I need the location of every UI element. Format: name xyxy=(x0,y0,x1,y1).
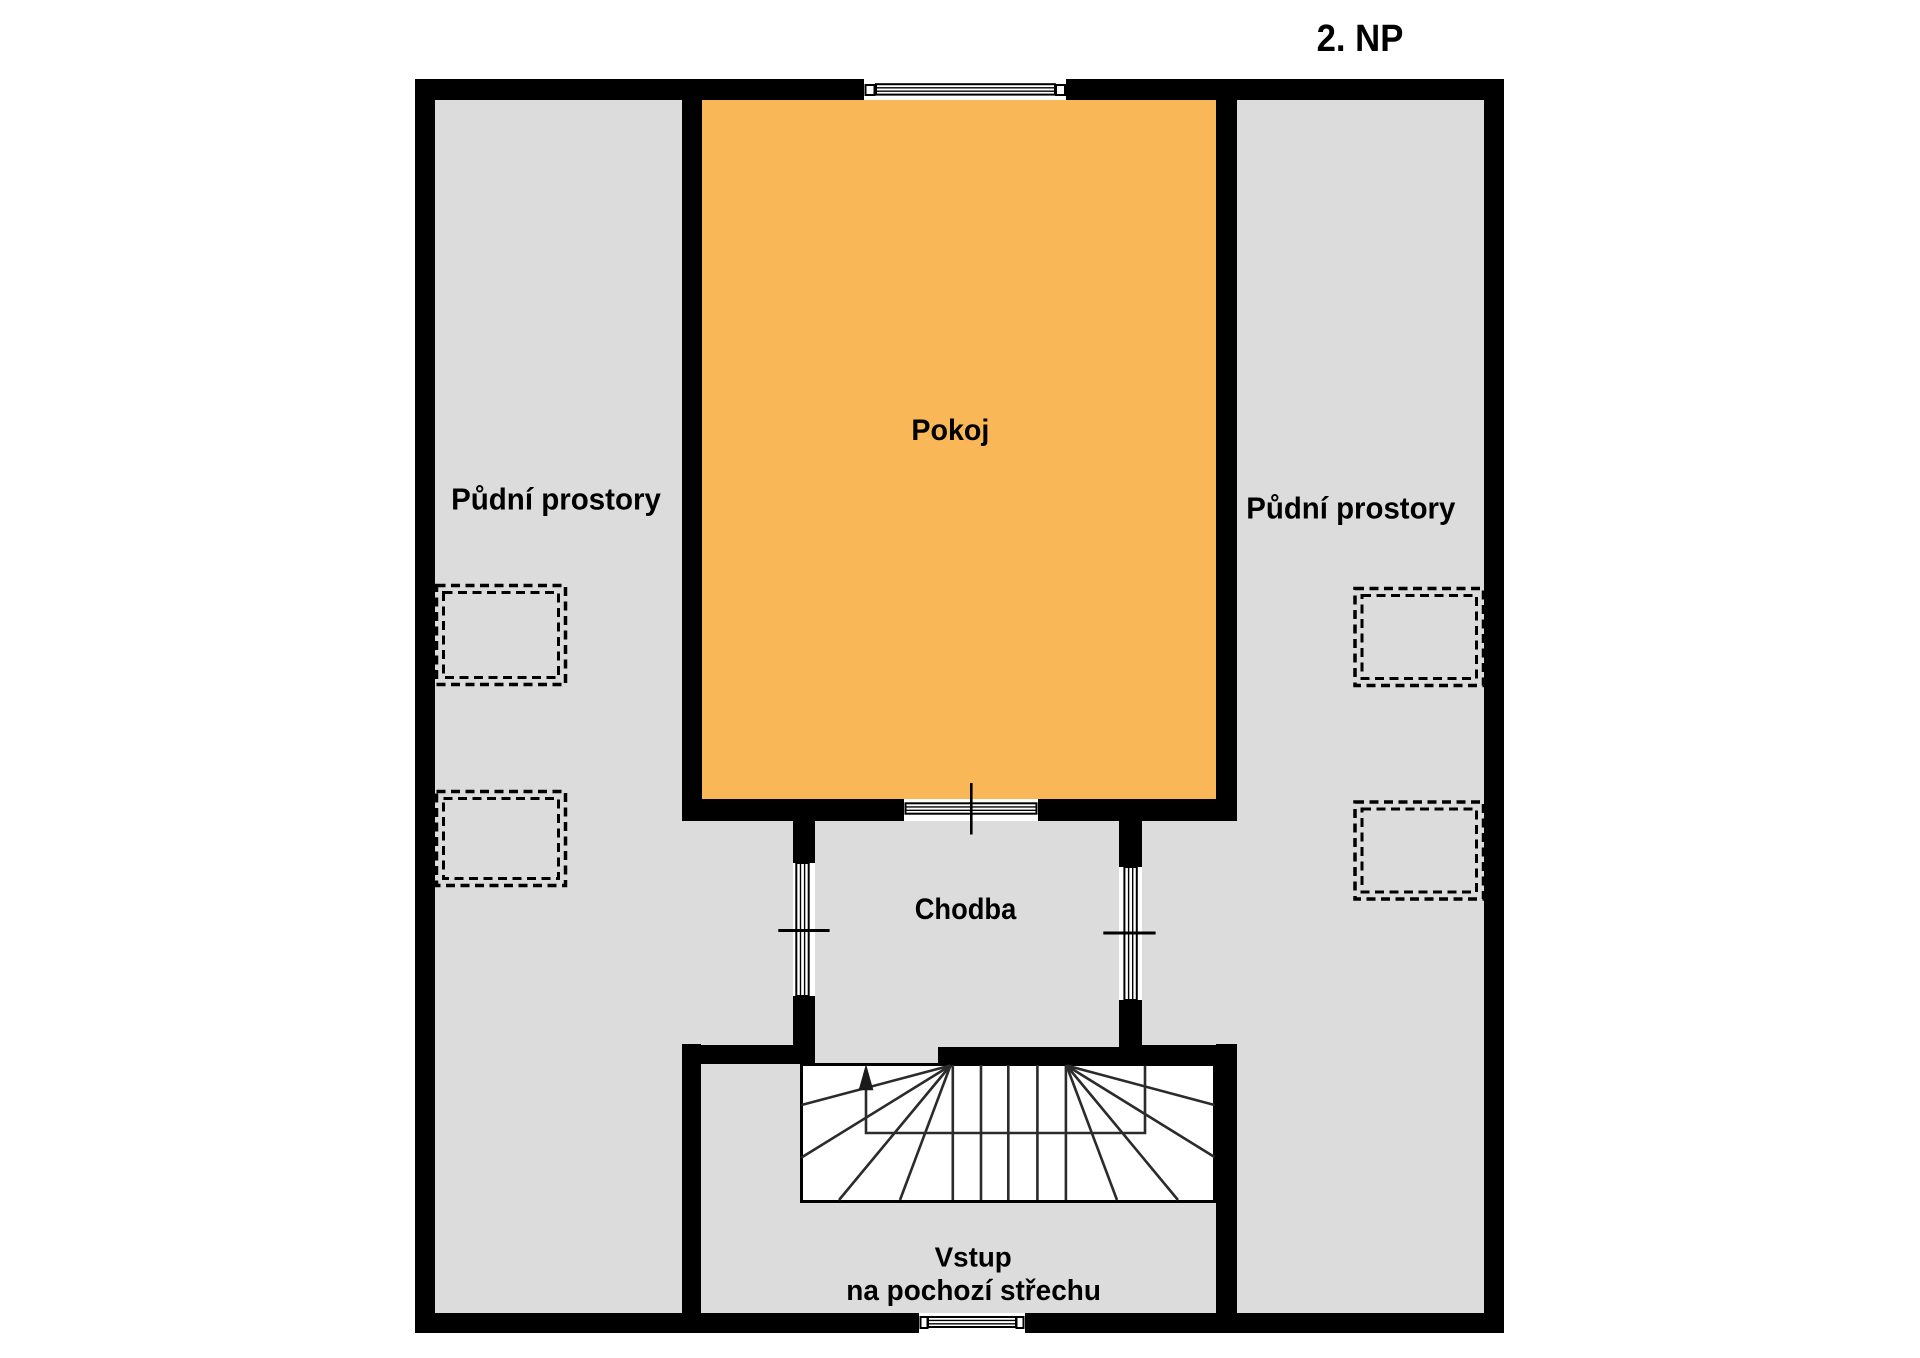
svg-text:Půdní prostory: Půdní prostory xyxy=(451,482,661,516)
svg-text:2. NP: 2. NP xyxy=(1317,18,1404,60)
svg-text:Chodba: Chodba xyxy=(915,893,1017,926)
svg-text:na pochozí střechu: na pochozí střechu xyxy=(846,1275,1101,1307)
svg-text:Pokoj: Pokoj xyxy=(911,414,989,447)
svg-text:Půdní prostory: Půdní prostory xyxy=(1246,492,1455,526)
svg-text:Vstup: Vstup xyxy=(935,1241,1012,1272)
